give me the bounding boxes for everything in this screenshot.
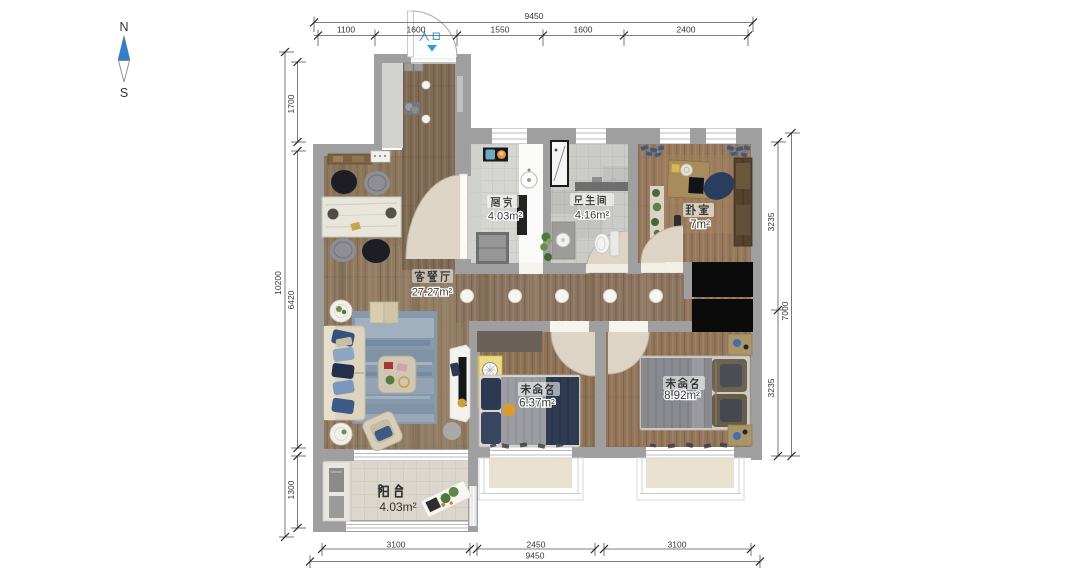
svg-text:2450: 2450 — [527, 540, 546, 550]
svg-text:2400: 2400 — [677, 25, 696, 35]
svg-text:4.03m²: 4.03m² — [488, 211, 523, 223]
svg-text:27.27m²: 27.27m² — [412, 287, 453, 299]
svg-text:3100: 3100 — [387, 540, 406, 550]
svg-text:7m²: 7m² — [690, 219, 710, 231]
svg-text:1600: 1600 — [574, 25, 593, 35]
svg-text:1550: 1550 — [491, 25, 510, 35]
svg-text:1600: 1600 — [407, 25, 426, 35]
svg-text:6420: 6420 — [286, 290, 296, 309]
svg-text:1300: 1300 — [286, 480, 296, 499]
svg-text:10200: 10200 — [273, 271, 283, 295]
svg-text:4.03m²: 4.03m² — [379, 500, 416, 514]
svg-text:S: S — [120, 86, 128, 100]
svg-text:9450: 9450 — [526, 551, 545, 561]
svg-text:4.16m²: 4.16m² — [575, 210, 610, 222]
svg-text:1700: 1700 — [286, 94, 296, 113]
svg-text:8.92m²: 8.92m² — [664, 390, 700, 402]
svg-text:3235: 3235 — [766, 212, 776, 231]
svg-text:7000: 7000 — [780, 301, 790, 320]
svg-text:9450: 9450 — [525, 11, 544, 21]
svg-text:3235: 3235 — [766, 378, 776, 397]
svg-text:3100: 3100 — [668, 540, 687, 550]
svg-text:6.37m²: 6.37m² — [519, 398, 555, 410]
svg-text:N: N — [119, 20, 128, 34]
svg-text:1100: 1100 — [337, 25, 356, 35]
